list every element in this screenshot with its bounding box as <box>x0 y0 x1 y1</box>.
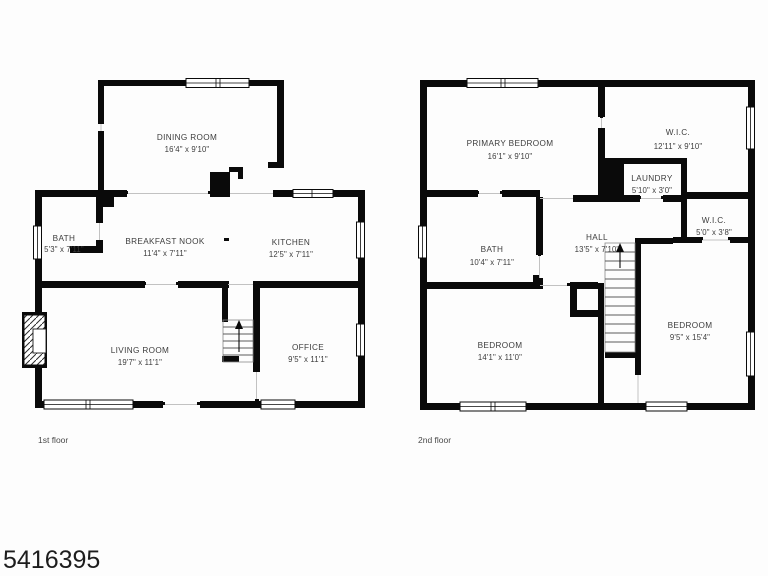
floorplan-page: DINING ROOM 16'4" x 9'10" BATH 5'3" x 7'… <box>0 0 768 576</box>
room-dims: 10'4" x 7'11" <box>470 258 514 267</box>
room-dims: 5'10" x 3'0" <box>632 186 672 195</box>
room-name: BATH <box>481 245 504 254</box>
room-dims: 5'0" x 3'8" <box>696 228 732 237</box>
door-ticks <box>125 191 259 405</box>
room-name: BREAKFAST NOOK <box>125 237 205 246</box>
room-dims: 16'1" x 9'10" <box>488 152 533 161</box>
window-icon <box>34 226 42 259</box>
first-floor-plan: DINING ROOM 16'4" x 9'10" BATH 5'3" x 7'… <box>22 79 365 446</box>
room-name: W.I.C. <box>702 216 726 225</box>
window-icon <box>467 79 538 88</box>
room-dims: 16'4" x 9'10" <box>165 145 210 154</box>
room-name: DINING ROOM <box>157 133 217 142</box>
window-icon <box>44 400 133 409</box>
floor-label: 1st floor <box>38 435 68 445</box>
room-name: LAUNDRY <box>631 174 673 183</box>
room-name: BATH <box>53 234 76 243</box>
room-name: PRIMARY BEDROOM <box>467 139 554 148</box>
room-dims: 14'1" x 11'0" <box>478 353 522 362</box>
room-name: BEDROOM <box>668 321 713 330</box>
stairs-icon <box>223 320 253 362</box>
room-dims: 13'5" x 7'10" <box>575 245 620 254</box>
room-name: BEDROOM <box>478 341 523 350</box>
second-floor-plan: PRIMARY BEDROOM 16'1" x 9'10" W.I.C. 12'… <box>418 79 755 446</box>
room-dims: 5'3" x 7'11" <box>44 245 84 254</box>
fireplace-icon <box>22 312 47 368</box>
room-name: KITCHEN <box>272 238 310 247</box>
room-name: OFFICE <box>292 343 324 352</box>
stairs-icon <box>605 243 635 352</box>
room-name: W.I.C. <box>666 128 690 137</box>
floor-label: 2nd floor <box>418 435 451 445</box>
room-name: HALL <box>586 233 608 242</box>
window-icon <box>646 402 687 411</box>
window-icon <box>186 79 249 88</box>
window-icon <box>460 402 526 411</box>
window-icon <box>293 190 333 198</box>
window-icon <box>357 222 365 258</box>
window-icon <box>357 324 365 356</box>
room-dims: 19'7" x 11'1" <box>118 358 162 367</box>
stairs-up-arrow-icon <box>235 320 243 352</box>
room-dims: 12'5" x 7'11" <box>269 250 313 259</box>
window-icon <box>747 107 755 149</box>
listing-id: 5416395 <box>3 546 100 574</box>
window-icon <box>261 400 295 409</box>
window-icon <box>419 226 427 258</box>
room-dims: 9'5" x 15'4" <box>670 333 710 342</box>
room-name: LIVING ROOM <box>111 346 169 355</box>
room-dims: 9'5" x 11'1" <box>288 355 328 364</box>
window-icon <box>747 332 755 376</box>
room-dims: 12'11" x 9'10" <box>654 142 703 151</box>
floorplan-image: DINING ROOM 16'4" x 9'10" BATH 5'3" x 7'… <box>0 0 768 576</box>
room-dims: 11'4" x 7'11" <box>143 249 187 258</box>
